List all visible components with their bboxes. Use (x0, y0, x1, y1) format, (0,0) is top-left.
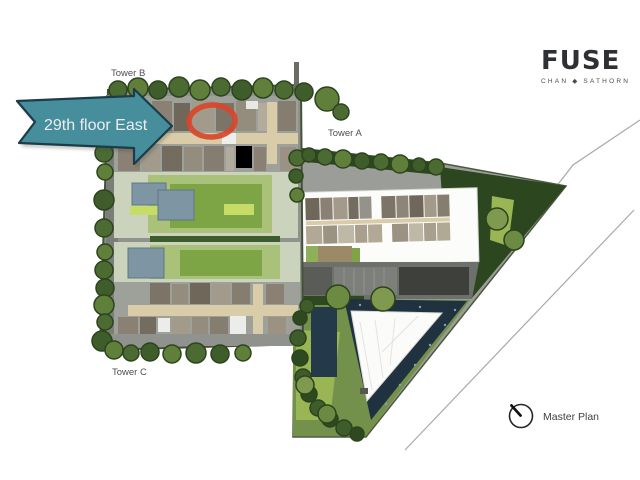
compass-icon (510, 405, 533, 428)
fuse-logo-wordmark: FUSE (541, 48, 621, 74)
master-plan-label: Master Plan (543, 411, 599, 423)
tower-b-courtyard (114, 172, 298, 242)
tower-c-courtyard (114, 242, 300, 282)
tower-b-label: Tower B (111, 68, 145, 79)
fuse-logo-subtitle: CHAN ◆ SATHORN (541, 77, 621, 85)
pool (128, 248, 164, 278)
right-parcel (281, 148, 566, 437)
tower-c-building (108, 282, 302, 346)
fuse-logo: FUSE CHAN ◆ SATHORN (541, 48, 621, 85)
tower-a-label: Tower A (328, 128, 362, 139)
tower-c-label: Tower C (112, 367, 147, 378)
master-plan-image: 29th floor East Tower B Tower A Tower C … (0, 0, 640, 480)
clubhouse-garden (284, 296, 470, 436)
callout-label: 29th floor East (44, 117, 148, 134)
